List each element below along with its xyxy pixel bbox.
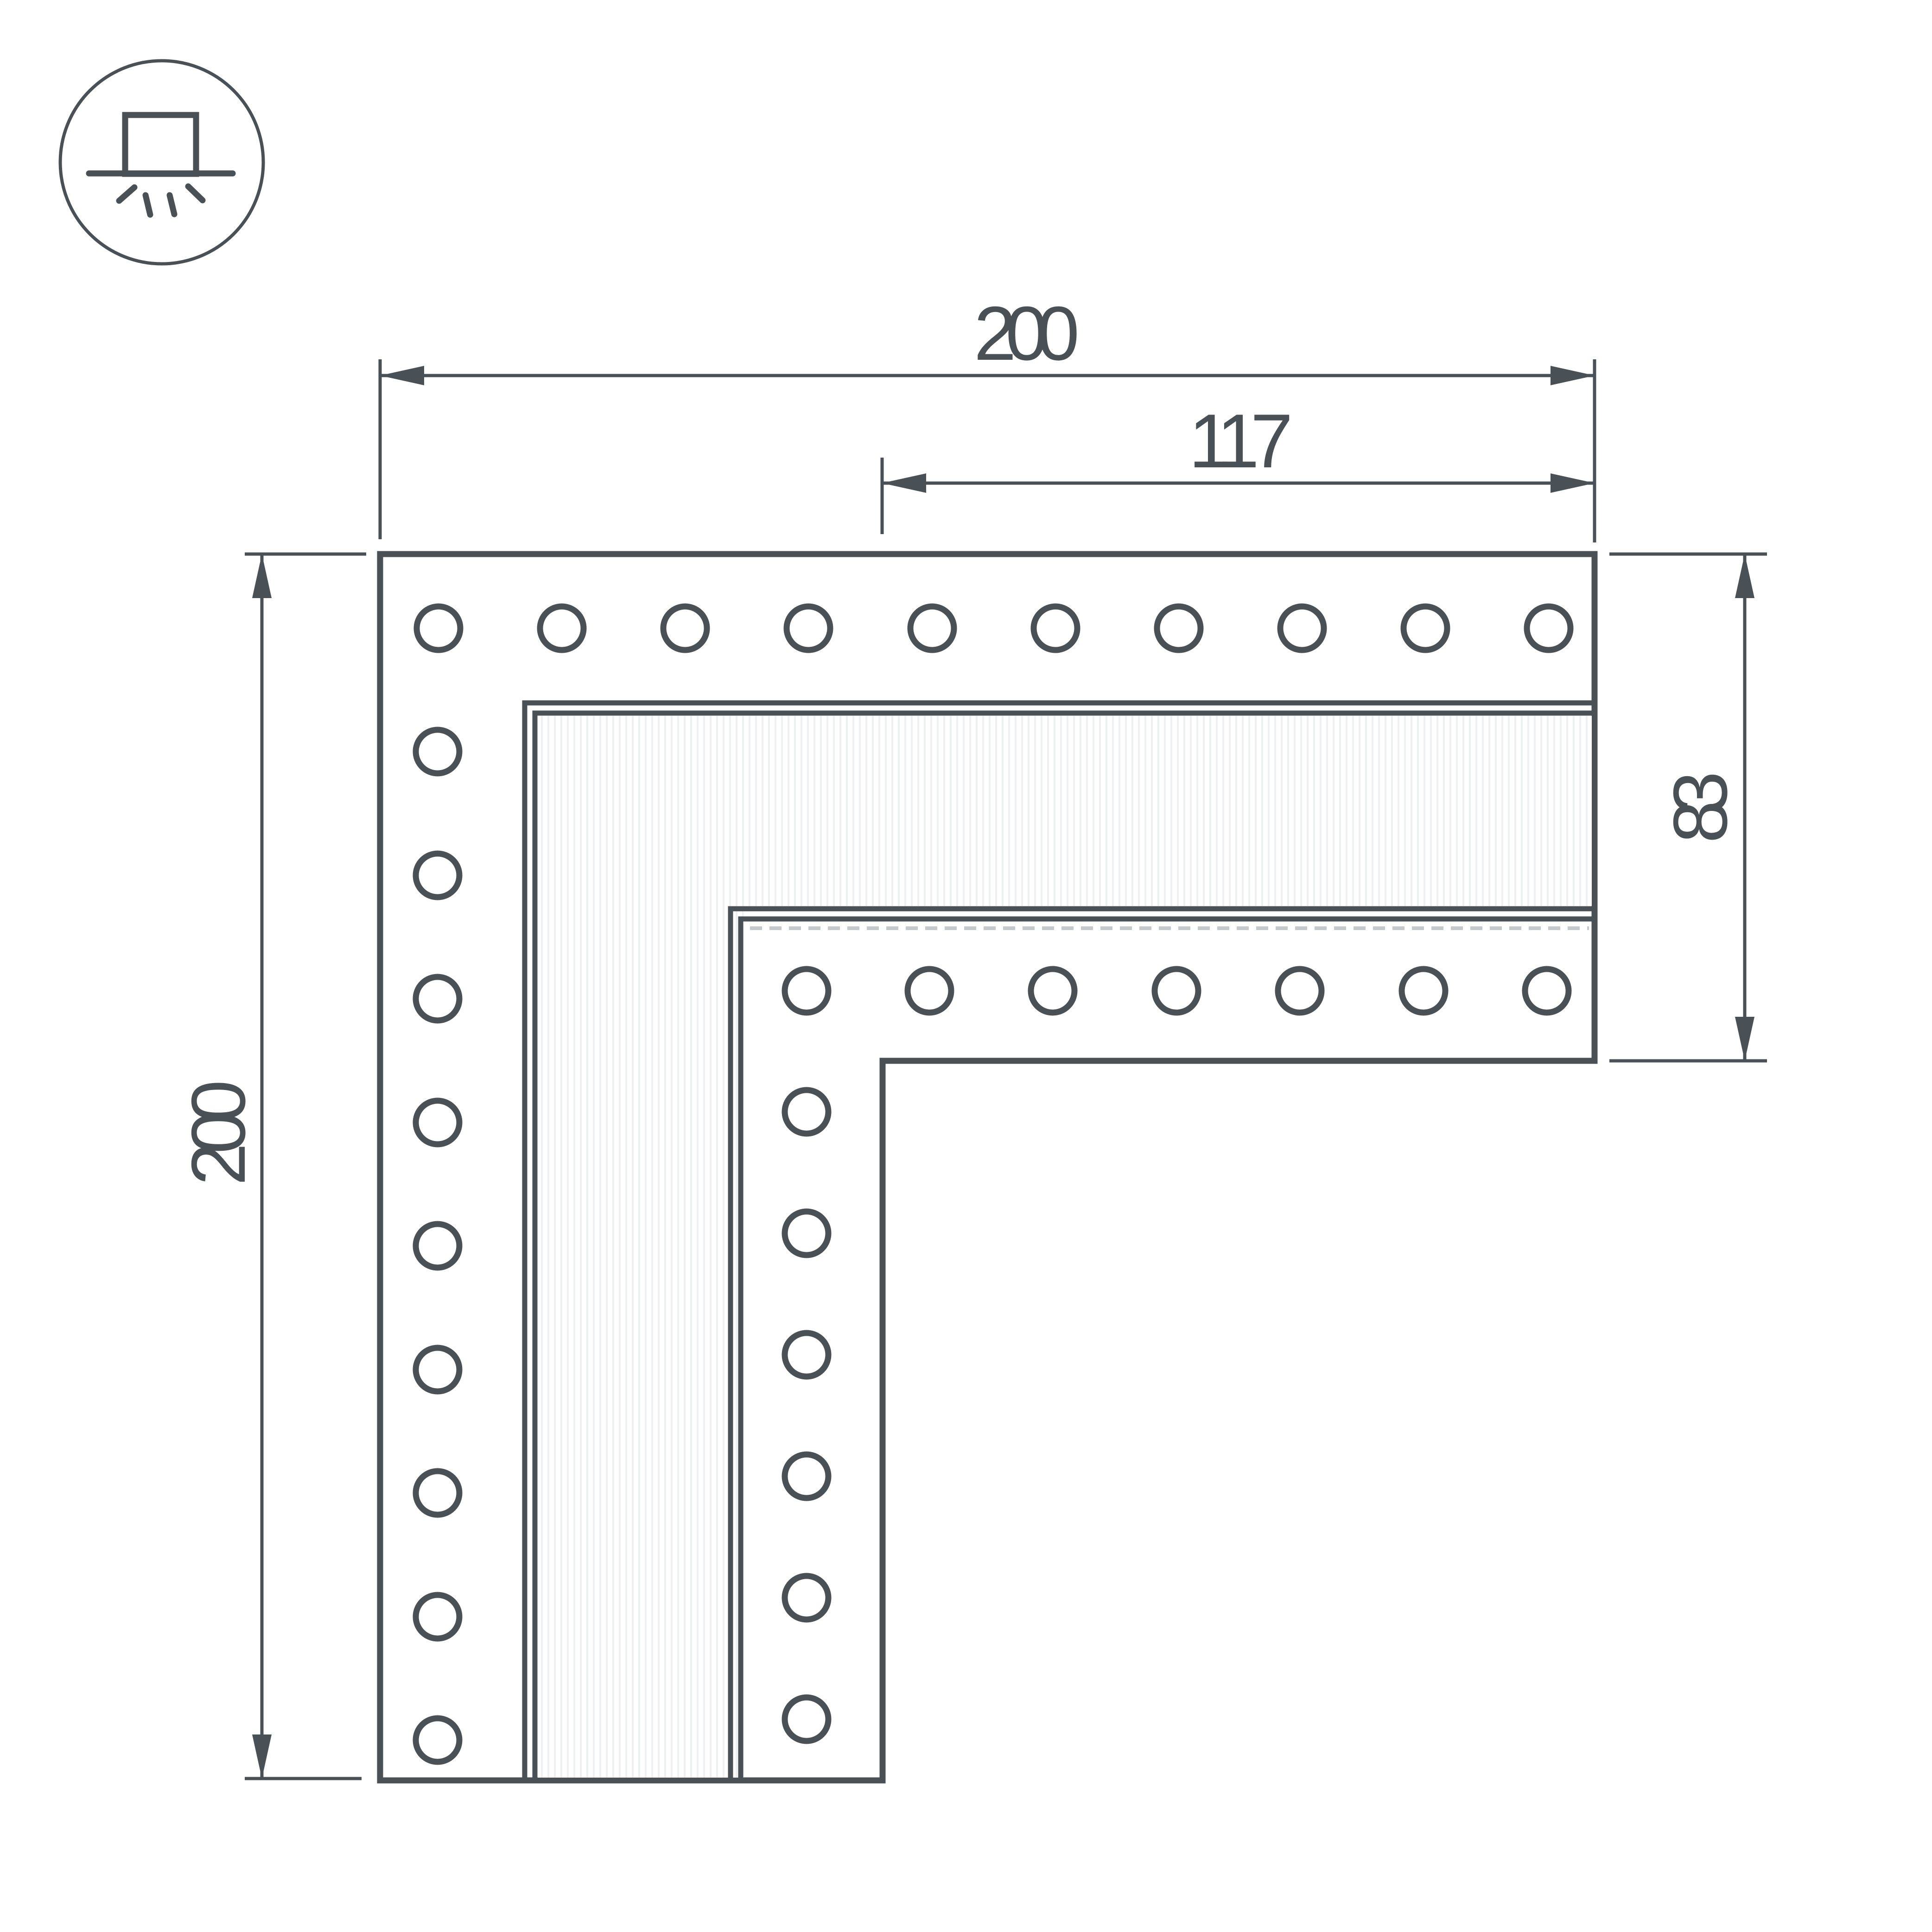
mounting-hole	[1034, 606, 1077, 650]
mounting-hole	[1402, 969, 1445, 1013]
mounting-hole	[785, 1697, 828, 1741]
dimension-top-width: 200	[380, 291, 1595, 542]
mounting-hole	[416, 854, 459, 897]
mounting-hole	[1278, 969, 1322, 1013]
mounting-hole	[540, 606, 584, 650]
mounting-hole	[416, 1471, 459, 1515]
technical-drawing: 200 117 83 200	[0, 0, 1932, 1932]
arrowhead-right-icon	[1551, 366, 1595, 385]
mounting-hole	[1404, 606, 1447, 650]
mounting-hole	[785, 1333, 828, 1377]
dimension-label-inner-width: 117	[1189, 398, 1293, 484]
mounting-hole	[416, 1101, 459, 1144]
mounting-hole	[785, 969, 828, 1013]
dimension-label-right-thickness: 83	[1658, 772, 1743, 843]
surface-mounted-light-icon	[60, 61, 263, 264]
arrowhead-top-icon	[1735, 554, 1754, 598]
light-rays-icon	[119, 186, 203, 215]
arrowhead-bottom-icon	[1735, 1017, 1754, 1061]
mounting-hole	[1155, 969, 1198, 1013]
corner-part	[380, 554, 1595, 1780]
mounting-hole	[663, 606, 707, 650]
dimension-label-left-height: 200	[176, 1080, 261, 1186]
arrowhead-left-icon	[882, 473, 926, 493]
mounting-hole	[1527, 606, 1570, 650]
dimension-left-height: 200	[176, 554, 366, 1779]
mounting-hole	[785, 1576, 828, 1620]
mounting-hole	[417, 606, 460, 650]
fixture-box-icon	[125, 115, 196, 174]
mounting-hole	[1280, 606, 1324, 650]
dimension-right-thickness: 83	[1609, 554, 1767, 1061]
arrowhead-top-icon	[252, 554, 272, 598]
mounting-hole	[908, 969, 951, 1013]
mounting-hole	[785, 1454, 828, 1498]
mounting-hole	[416, 1224, 459, 1268]
mounting-hole	[1525, 969, 1569, 1013]
mounting-hole	[416, 1718, 459, 1762]
mounting-hole	[787, 606, 830, 650]
dimension-label-top-width: 200	[974, 291, 1080, 376]
icon-circle	[60, 61, 263, 264]
mounting-hole	[785, 1090, 828, 1134]
mounting-hole	[910, 606, 954, 650]
mounting-hole	[416, 1348, 459, 1391]
mounting-hole	[1031, 969, 1074, 1013]
mounting-hole	[416, 977, 459, 1020]
arrowhead-bottom-icon	[252, 1734, 272, 1779]
channel-hatch	[538, 716, 1592, 1778]
mounting-hole	[416, 1595, 459, 1639]
arrowhead-left-icon	[380, 366, 424, 385]
mounting-hole	[416, 730, 459, 773]
dimension-inner-width: 117	[882, 398, 1595, 534]
mounting-hole	[785, 1211, 828, 1255]
mounting-hole	[1157, 606, 1201, 650]
arrowhead-right-icon	[1551, 473, 1595, 493]
